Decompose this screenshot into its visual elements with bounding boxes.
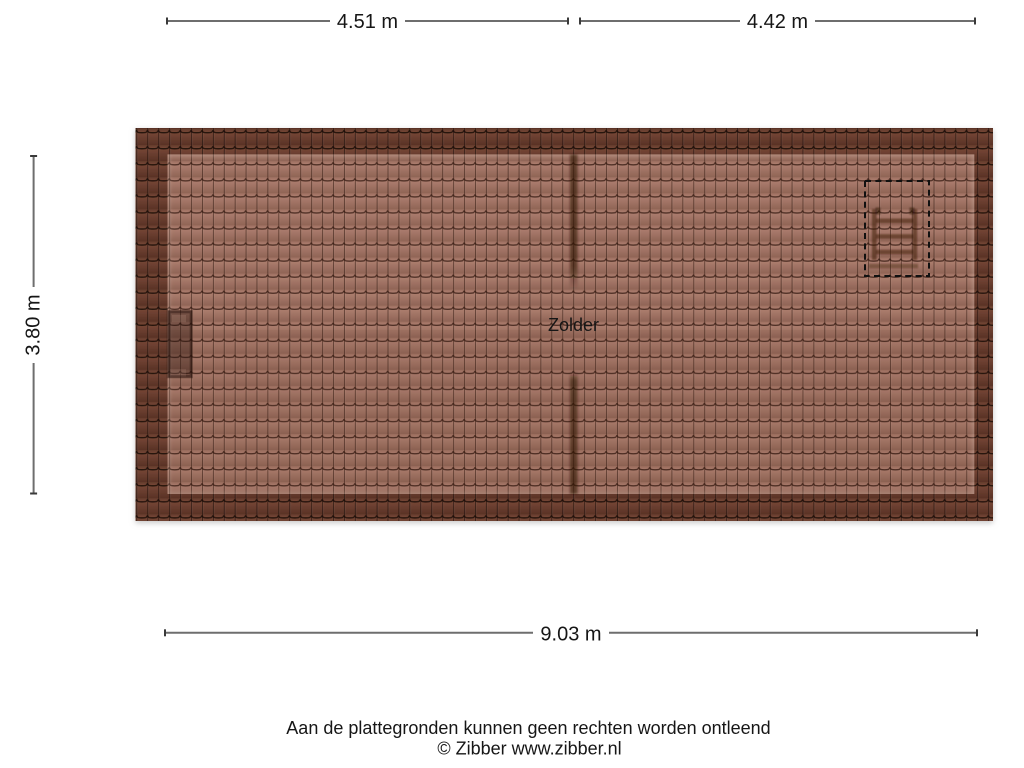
svg-text:3.80 m: 3.80 m <box>23 294 45 355</box>
svg-text:© Zibber www.zibber.nl: © Zibber www.zibber.nl <box>437 739 621 759</box>
svg-text:9.03 m: 9.03 m <box>540 624 601 646</box>
svg-text:4.51 m: 4.51 m <box>337 11 398 33</box>
svg-text:Zolder: Zolder <box>548 315 599 335</box>
svg-text:4.42 m: 4.42 m <box>747 11 808 33</box>
svg-text:Aan de plattegronden kunnen ge: Aan de plattegronden kunnen geen rechten… <box>286 718 770 738</box>
